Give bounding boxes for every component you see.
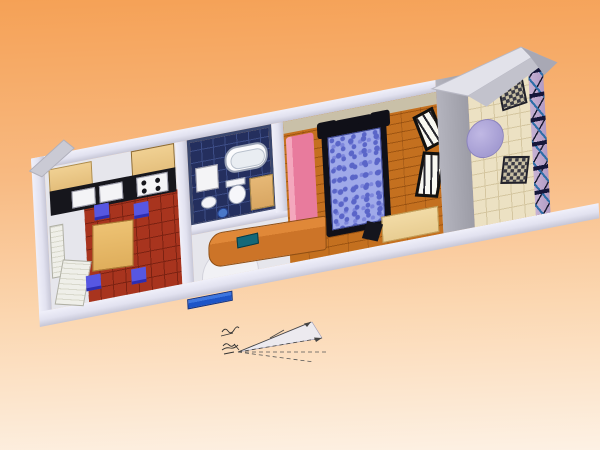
handwritten-annotation-scribble <box>221 327 239 336</box>
view-cone-fill <box>238 322 322 352</box>
camera-view-indicator <box>214 316 354 376</box>
arrowhead-icon <box>314 338 322 343</box>
apartment-floorplan <box>31 50 600 330</box>
view-cone-dashed-line <box>238 352 314 362</box>
left-neighbor-wall-stub <box>28 138 75 179</box>
balcony-wall-shapes <box>0 6 600 366</box>
handwritten-annotation-scribble <box>222 344 238 354</box>
scene-background <box>0 0 600 450</box>
